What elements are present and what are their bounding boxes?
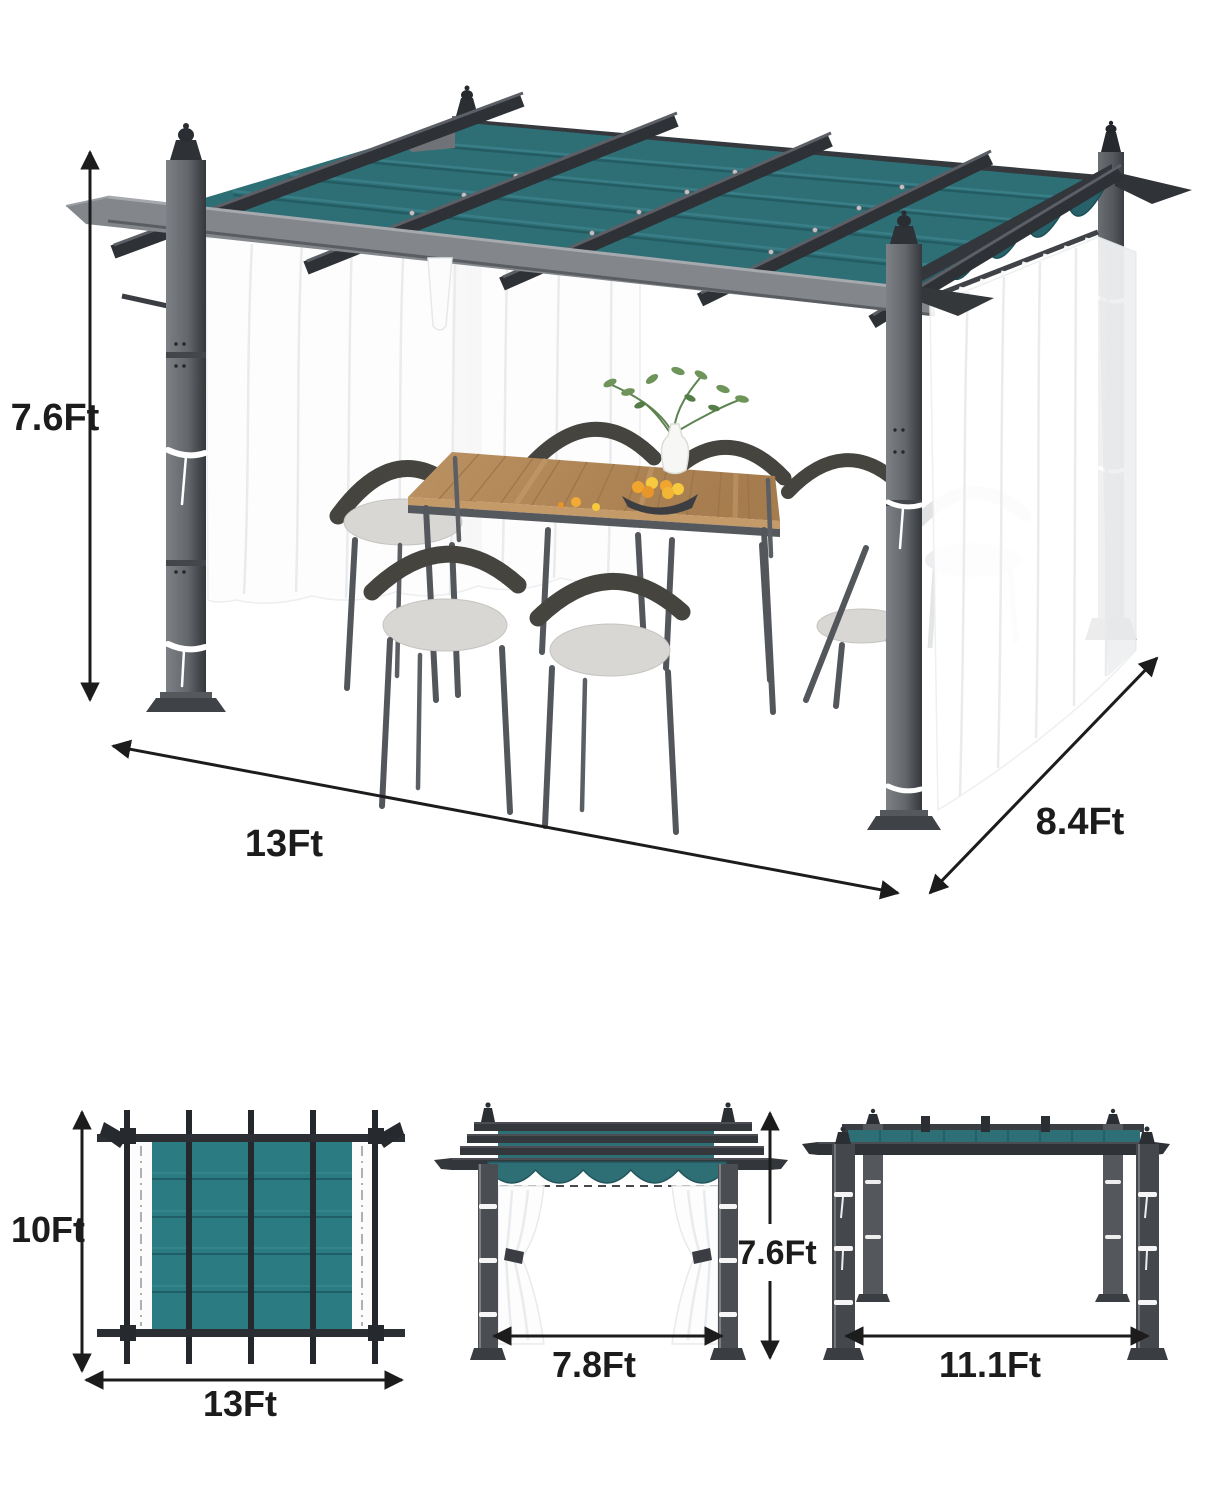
front-view-width-label: 7.8Ft	[552, 1344, 636, 1385]
side-view: 11.1Ft	[802, 1109, 1170, 1385]
main-view: 7.6Ft 13Ft 8.4Ft	[11, 86, 1192, 894]
top-view-width-label: 13Ft	[203, 1383, 277, 1424]
side-view-near-rail	[802, 1142, 1170, 1155]
front-view-height-label: 7.6Ft	[737, 1234, 816, 1272]
chair	[538, 581, 682, 832]
diagram-canvas: 7.6Ft 13Ft 8.4Ft	[0, 0, 1214, 1494]
rear-right-wing	[1115, 172, 1192, 204]
side-view-dimensions: 11.1Ft	[846, 1336, 1148, 1385]
front-view-scallops	[488, 1162, 726, 1183]
depth-dimension-label: 8.4Ft	[1036, 801, 1125, 843]
pergola-dimension-diagram: 7.6Ft 13Ft 8.4Ft	[0, 0, 1214, 1494]
top-view: 10Ft 13Ft	[11, 1110, 405, 1424]
height-dimension-label: 7.6Ft	[11, 397, 100, 439]
left-curtain	[206, 224, 640, 603]
front-view-curtains	[498, 1186, 718, 1344]
front-view: 7.8Ft 7.6Ft	[434, 1102, 817, 1385]
side-view-width-label: 11.1Ft	[939, 1344, 1041, 1385]
width-dimension-label: 13Ft	[245, 823, 323, 865]
top-view-depth-label: 10Ft	[11, 1209, 85, 1250]
front-view-finials	[481, 1102, 735, 1122]
right-curtain	[930, 237, 1136, 810]
